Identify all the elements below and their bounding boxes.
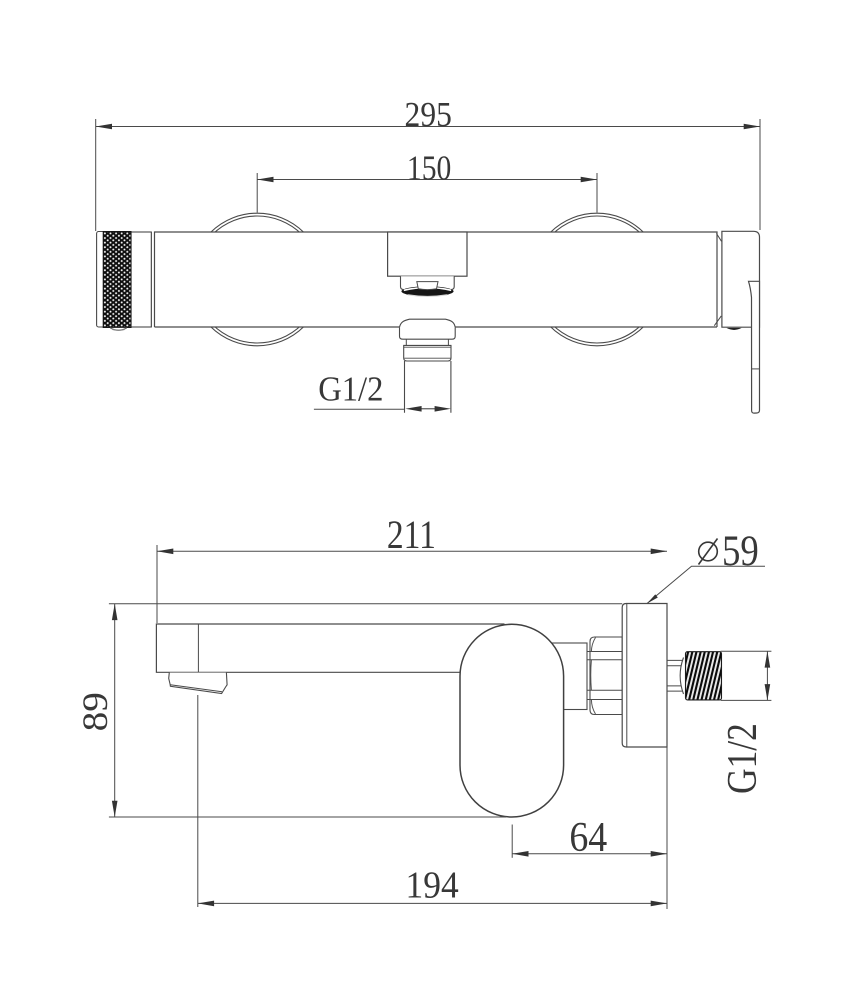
svg-text:89: 89: [75, 692, 115, 731]
svg-text:295: 295: [405, 95, 452, 134]
svg-text:64: 64: [569, 815, 607, 861]
svg-text:59: 59: [722, 528, 759, 575]
svg-text:G1/2: G1/2: [318, 370, 383, 409]
svg-text:150: 150: [407, 148, 451, 187]
svg-text:194: 194: [406, 865, 459, 907]
svg-text:211: 211: [387, 512, 436, 557]
svg-text:G1/2: G1/2: [720, 723, 766, 794]
